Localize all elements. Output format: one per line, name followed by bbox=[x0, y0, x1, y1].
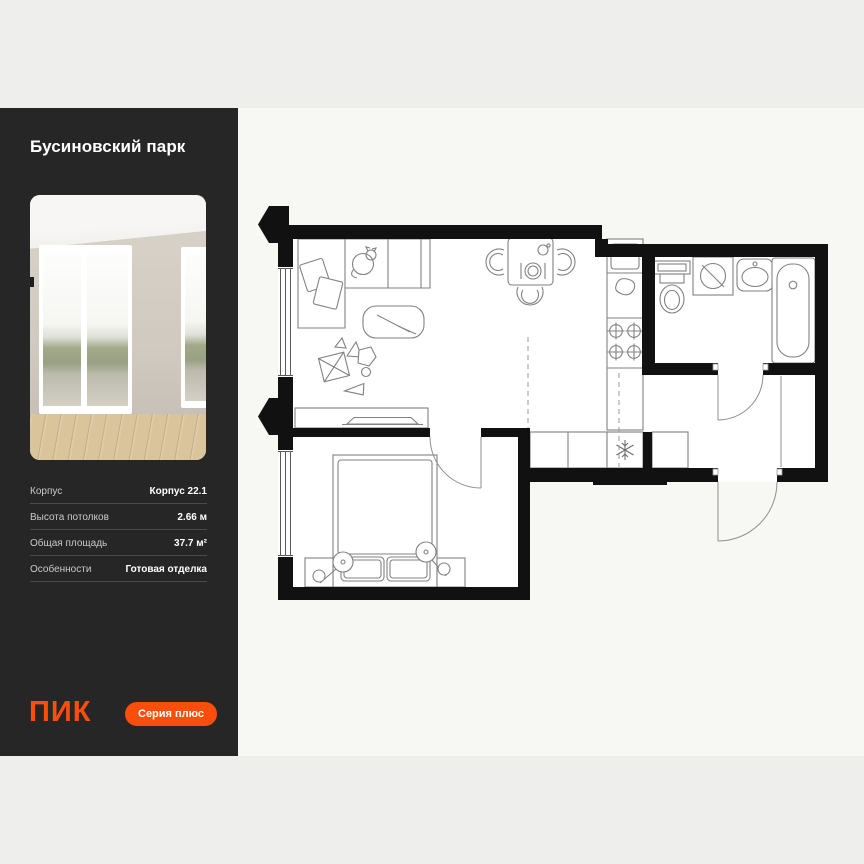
fridge-snowflake-icon bbox=[607, 432, 643, 468]
top-spacer bbox=[0, 0, 864, 108]
floorplan bbox=[250, 195, 850, 625]
photo-wall-switch bbox=[30, 277, 34, 287]
bottom-spacer bbox=[0, 756, 864, 864]
direction-arrow-top bbox=[258, 206, 289, 243]
property-details: Корпус Корпус 22.1 Высота потолков 2.66 … bbox=[30, 478, 207, 582]
washing-machine bbox=[693, 257, 733, 295]
kitchen-counter bbox=[607, 239, 643, 430]
direction-arrow-bottom bbox=[258, 398, 289, 435]
plan-panel bbox=[238, 108, 864, 756]
sidebar: Бусиновский парк Корпус Корпус 22.1 bbox=[0, 108, 238, 756]
coffee-table bbox=[363, 306, 424, 338]
hall-cabinet bbox=[652, 432, 688, 468]
photo-window-right bbox=[181, 247, 206, 409]
detail-value: 2.66 м bbox=[177, 512, 207, 523]
bathtub bbox=[772, 258, 815, 363]
window-bedroom bbox=[278, 450, 293, 557]
tv-console bbox=[295, 408, 428, 428]
entrance-door bbox=[718, 482, 777, 541]
project-title: Бусиновский парк bbox=[30, 137, 185, 157]
detail-value: Корпус 22.1 bbox=[150, 486, 207, 497]
detail-value: 37.7 м² bbox=[174, 538, 207, 549]
detail-row-ceiling-height: Высота потолков 2.66 м bbox=[30, 504, 207, 530]
detail-label: Особенности bbox=[30, 564, 91, 575]
detail-row-features: Особенности Готовая отделка bbox=[30, 556, 207, 582]
apartment-photo[interactable] bbox=[30, 195, 206, 460]
detail-label: Высота потолков bbox=[30, 512, 109, 523]
detail-row-korpus: Корпус Корпус 22.1 bbox=[30, 478, 207, 504]
window-living bbox=[278, 267, 293, 377]
photo-wood-floor bbox=[30, 414, 206, 460]
bathroom-sink bbox=[737, 259, 773, 291]
photo-window-left bbox=[39, 245, 132, 413]
dining-table bbox=[508, 238, 553, 285]
detail-value: Готовая отделка bbox=[125, 564, 207, 575]
wardrobe bbox=[530, 432, 607, 468]
detail-label: Корпус bbox=[30, 486, 62, 497]
page: Бусиновский парк Корпус Корпус 22.1 bbox=[0, 0, 864, 864]
pik-logo: ПИК bbox=[29, 696, 91, 729]
series-plus-badge[interactable]: Серия плюс bbox=[125, 702, 217, 726]
detail-row-total-area: Общая площадь 37.7 м² bbox=[30, 530, 207, 556]
detail-label: Общая площадь bbox=[30, 538, 107, 549]
content: Бусиновский парк Корпус Корпус 22.1 bbox=[0, 108, 864, 756]
